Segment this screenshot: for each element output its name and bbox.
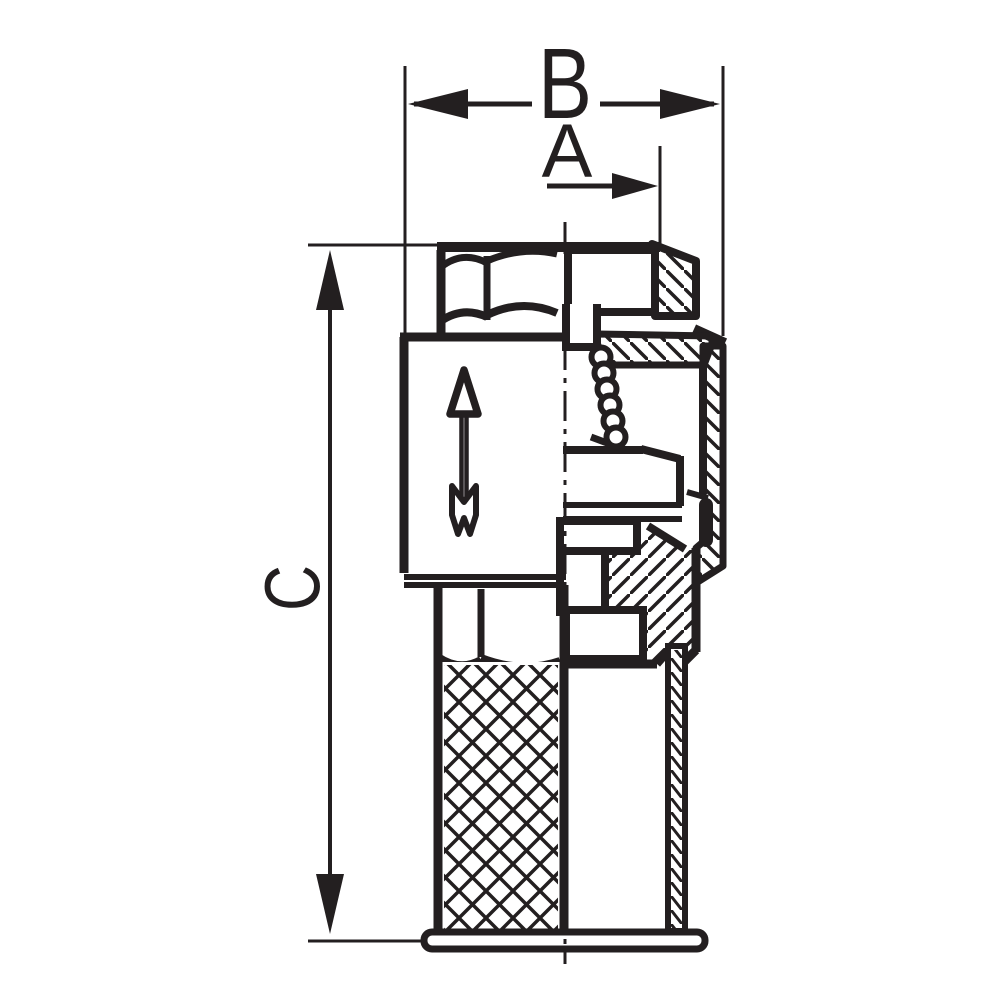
spring-coil (607, 428, 626, 447)
poppet-lower-band (560, 521, 637, 551)
drawing-canvas: B A C (0, 0, 1000, 1000)
strainer-mesh (438, 585, 564, 931)
mesh-crosshatch (444, 665, 558, 929)
dim-c-arrow-bottom (316, 874, 344, 934)
dimension-a: A (542, 109, 658, 199)
stem-tab (566, 304, 597, 347)
seat-section (597, 334, 712, 365)
outlet-cavity (566, 610, 643, 659)
flow-arrow (450, 370, 478, 534)
dim-a-arrow (612, 173, 658, 199)
thread-bore (568, 250, 655, 312)
dim-b-arrow-right (660, 89, 720, 119)
dim-c-arrow-top (316, 250, 344, 310)
tube-section-ticks (671, 650, 682, 928)
valve-internals (560, 362, 713, 664)
dim-c-label: C (248, 565, 336, 611)
hex-top-chamfer-arcs (441, 251, 557, 267)
hex-bottom-chamfer-arcs (441, 306, 557, 321)
dim-a-label: A (542, 109, 593, 194)
dimension-c: C (248, 250, 344, 934)
dim-b-arrow-left (408, 89, 468, 119)
lower-hex-nut (438, 589, 560, 667)
valve-body (400, 337, 569, 585)
seal-ring (699, 498, 713, 547)
flow-arrow-fletching (452, 486, 476, 534)
valve-section-drawing: B A C (0, 0, 1000, 1000)
flow-arrow-head (450, 370, 478, 414)
strainer-tube (668, 646, 685, 931)
